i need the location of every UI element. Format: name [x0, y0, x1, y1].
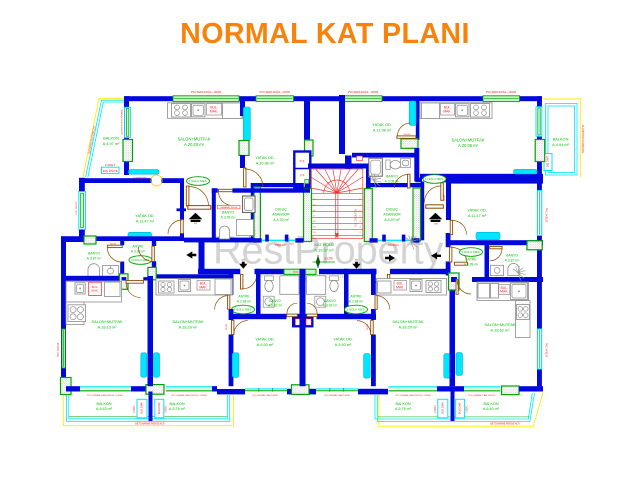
svg-text:BALKONA.5.76 m²: BALKONA.5.76 m² [169, 402, 186, 411]
svg-text:MAK.: MAK. [199, 285, 207, 289]
svg-text:BETONARME PERDE ALTI: BETONARME PERDE ALTI [135, 423, 165, 426]
svg-text:BANYOA.3.42 m²: BANYOA.3.42 m² [268, 299, 283, 308]
svg-text:BALKONA.5.76 m²: BALKONA.5.76 m² [395, 402, 412, 411]
svg-text:BALKONA.4.94 m²: BALKONA.4.94 m² [552, 137, 570, 148]
svg-text:MAK.: MAK. [91, 289, 99, 293]
svg-text:BALKONA.6.63 m²: BALKONA.6.63 m² [96, 402, 113, 411]
svg-text:PVC SÜRME CAM 240/220: PVC SÜRME CAM 240/220 [469, 394, 497, 397]
svg-text:BANYOA.3.78 m²: BANYOA.3.78 m² [221, 211, 237, 220]
svg-text:Ç.Ş: Ç.Ş [300, 173, 305, 177]
svg-text:MAK.: MAK. [396, 285, 404, 289]
svg-text:MAK.: MAK. [500, 290, 508, 294]
svg-text:MAK.: MAK. [210, 109, 218, 113]
svg-text:D.Ş: D.Ş [300, 159, 305, 163]
svg-text:BALKONA.6.40 m²: BALKONA.6.40 m² [483, 402, 500, 411]
svg-text:BALKONA.4.97 m²: BALKONA.4.97 m² [103, 136, 121, 147]
svg-text:DIŞ ÜNİTE: DIŞ ÜNİTE [103, 168, 118, 173]
svg-text:PVC SÜRME CAM 140/80: PVC SÜRME CAM 140/80 [252, 394, 279, 397]
svg-text:MAK.: MAK. [443, 109, 451, 113]
svg-text:[M]: [M] [355, 259, 358, 261]
svg-text:2.60X1: 2.60X1 [165, 405, 168, 413]
svg-text:±1.50: ±1.50 [324, 256, 333, 260]
svg-text:PVC 140/120: PVC 140/120 [545, 208, 548, 223]
svg-text:PVC SÜRME CAM 240/220 - 140/80: PVC SÜRME CAM 240/220 - 140/80 [87, 394, 123, 397]
svg-text:100/90: 100/90 [110, 243, 117, 245]
svg-text:2 ADET: 2 ADET [105, 163, 116, 167]
svg-text:SERAMİK 30X30: SERAMİK 30X30 [220, 206, 238, 209]
svg-text:YATAK OD.A.11.47 m²: YATAK OD.A.11.47 m² [467, 209, 487, 218]
svg-text:5 NOLU MES.: 5 NOLU MES. [461, 250, 480, 254]
svg-text:4 NOLU MES.: 4 NOLU MES. [188, 179, 207, 183]
svg-text:1 NOLU MES.: 1 NOLU MES. [425, 177, 444, 181]
svg-text:1/50X200: 1/50X200 [387, 243, 399, 247]
svg-text:2.60X1: 2.60X1 [465, 405, 468, 413]
svg-text:YATAK OD.A.10.98 m²: YATAK OD.A.10.98 m² [255, 156, 275, 165]
svg-text:[M]: [M] [434, 224, 437, 226]
svg-text:BANYOA.3.42 m²: BANYOA.3.42 m² [323, 299, 338, 308]
svg-text:BLK.DMR: BLK.DMR [440, 402, 444, 414]
svg-text:YATAK OD.A.9.92 m²: YATAK OD.A.9.92 m² [255, 338, 274, 347]
svg-text:BLK.DMR: BLK.DMR [458, 402, 462, 414]
svg-text:BLK.DMR: BLK.DMR [140, 402, 144, 414]
svg-text:PVC SERA DOĞA - 100/80: PVC SERA DOĞA - 100/80 [260, 91, 291, 94]
svg-text:PVC SÜRME CAM 240/220 - 140/80: PVC SÜRME CAM 240/220 - 140/80 [171, 394, 207, 397]
svg-text:SÜRME KAPI: SÜRME KAPI [133, 176, 147, 179]
svg-text:YATAK OD.A.11.47 m²: YATAK OD.A.11.47 m² [135, 214, 155, 223]
svg-text:2 NOLU MES.: 2 NOLU MES. [346, 308, 365, 312]
svg-text:BLK.DMR: BLK.DMR [157, 402, 161, 414]
svg-text:100/220: 100/220 [403, 134, 411, 136]
svg-text:ALÜMİNYUM DOĞRAMA: ALÜMİNYUM DOĞRAMA [120, 109, 123, 135]
svg-text:PVC SÜRME CAM 140/80: PVC SÜRME CAM 140/80 [324, 394, 351, 397]
svg-text:1/50X200: 1/50X200 [274, 243, 286, 247]
svg-text:BANYOA.3.87 m²: BANYOA.3.87 m² [505, 254, 521, 263]
svg-text:2.60X1: 2.60X1 [434, 405, 437, 413]
svg-text:PVC SERA DOĞA - 100/80: PVC SERA DOĞA - 100/80 [191, 91, 222, 94]
svg-text:PVC 140/120: PVC 140/120 [57, 342, 60, 357]
svg-text:PVC 140/120: PVC 140/120 [76, 201, 78, 215]
svg-text:YATAK OD.A.9.92 m²: YATAK OD.A.9.92 m² [333, 338, 352, 347]
svg-text:3 NOLU MES.: 3 NOLU MES. [233, 308, 252, 312]
svg-text:PVC SERA DOĞA - 100/80: PVC SERA DOĞA - 100/80 [486, 91, 517, 94]
svg-text:PVC SÜRME CAM 240/220 - 140/80: PVC SÜRME CAM 240/220 - 140/80 [395, 394, 431, 397]
svg-text:YATAK OD.A.12.08 m²: YATAK OD.A.12.08 m² [372, 123, 392, 132]
svg-text:KAT HOLÜA.19.97 m²: KAT HOLÜA.19.97 m² [314, 242, 334, 253]
svg-text:2.60X1: 2.60X1 [133, 405, 136, 413]
svg-text:90/220: 90/220 [444, 194, 446, 201]
svg-text:BETONARME PERDE ALTI: BETONARME PERDE ALTI [490, 423, 520, 426]
svg-text:NORMAL KAT PLANI: NORMAL KAT PLANI [180, 18, 470, 50]
svg-text:90/220: 90/220 [226, 323, 228, 330]
svg-text:PVC 140/120: PVC 140/120 [545, 343, 548, 358]
svg-text:S.B. 17X16.7/28: S.B. 17X16.7/28 [355, 209, 358, 227]
svg-text:BANYOA.3.87 m²: BANYOA.3.87 m² [87, 252, 103, 261]
svg-text:[M]: [M] [194, 223, 197, 225]
svg-text:[M]: [M] [242, 259, 245, 261]
svg-text:90/220: 90/220 [367, 323, 369, 330]
svg-text:PVC SERA DOĞA - 100/80: PVC SERA DOĞA - 100/80 [348, 91, 379, 94]
